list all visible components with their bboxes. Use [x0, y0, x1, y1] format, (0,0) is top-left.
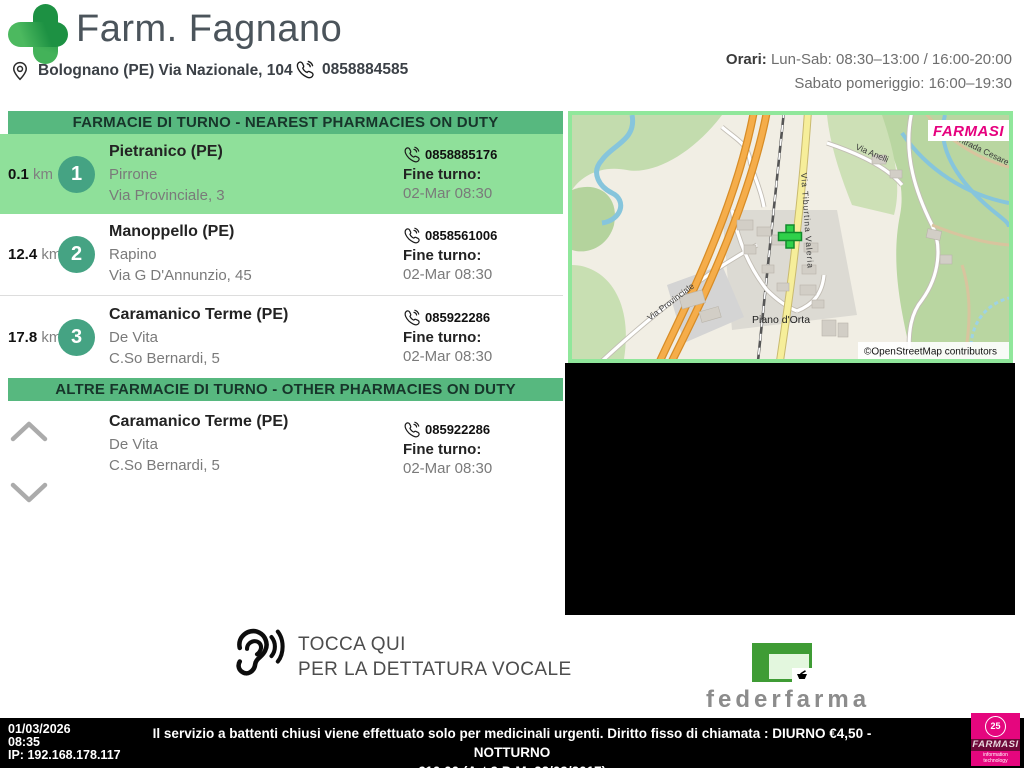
hours-line2: Sabato pomeriggio: 16:00–19:30	[726, 72, 1012, 96]
pharmacy-info: Pietranico (PE) Pirrone Via Provinciale,…	[109, 143, 403, 206]
pharmacy-owner: Pirrone	[109, 164, 403, 185]
rank-badge: 3	[58, 319, 95, 356]
map[interactable]: Via Tiburtina Valeria Via Anelli Contrad…	[568, 111, 1013, 363]
pharmacy-city: Caramanico Terme (PE)	[109, 306, 403, 324]
location-pin-icon	[10, 60, 30, 82]
phone-icon	[403, 146, 420, 163]
phone-icon	[403, 309, 420, 326]
farmasi-tagline: information technology	[971, 752, 1020, 764]
fine-turno-date: 02-Mar 08:30	[403, 266, 563, 283]
pharmacy-city: Pietranico (PE)	[109, 143, 403, 161]
phone-icon	[295, 60, 314, 79]
fine-turno-date: 02-Mar 08:30	[403, 348, 563, 365]
fine-turno-label: Fine turno:	[403, 329, 563, 346]
pharmacy-street: Via G D'Annunzio, 45	[109, 265, 403, 286]
pharmacy-phone: 0858884585	[322, 61, 408, 79]
fine-turno-date: 02-Mar 08:30	[403, 185, 563, 202]
hours-line1: Lun-Sab: 08:30–13:00 / 16:00-20:00	[771, 51, 1012, 68]
federfarma-logo: federfarma	[706, 643, 858, 714]
duty-info: 085922286 Fine turno: 02-Mar 08:30	[403, 413, 563, 477]
footer-ip: IP: 192.168.178.117	[8, 749, 121, 762]
duty-info: 085922286 Fine turno: 02-Mar 08:30	[403, 309, 563, 365]
pharmacy-phone-row: 0858884585	[295, 60, 408, 79]
farmasi-logo: 25 FARMASI information technology	[971, 713, 1020, 766]
ear-icon	[228, 626, 286, 688]
pharmacy-city: Manoppello (PE)	[109, 223, 403, 241]
mortar-pestle-icon	[796, 670, 808, 681]
duty-phone: 0858885176	[425, 147, 497, 162]
map-attribution: ©OpenStreetMap contributors	[864, 347, 997, 358]
pharmacy-street: C.So Bernardi, 5	[109, 455, 403, 476]
pharmacy-owner: De Vita	[109, 327, 403, 348]
nearest-section-header: FARMACIE DI TURNO - NEAREST PHARMACIES O…	[8, 111, 563, 134]
other-pharmacy-row[interactable]: Caramanico Terme (PE) De Vita C.So Berna…	[0, 401, 563, 516]
pharmacy-info: Caramanico Terme (PE) De Vita C.So Berna…	[109, 413, 403, 476]
kiosk-screen: Farm. Fagnano Bolognano (PE) Via Naziona…	[0, 0, 1024, 768]
map-canvas: Via Tiburtina Valeria Via Anelli Contrad…	[572, 115, 1009, 359]
distance: 17.8 km	[0, 329, 58, 346]
pharmacy-street: Via Provinciale, 3	[109, 185, 403, 206]
pharmacy-street: C.So Bernardi, 5	[109, 348, 403, 369]
rank-badge: 2	[58, 236, 95, 273]
pharmacy-cross-logo	[8, 4, 68, 64]
farmasi-brand: FARMASI	[971, 739, 1020, 751]
federfarma-mark	[752, 643, 812, 682]
scroll-arrows	[0, 413, 58, 505]
pharmacy-owner: De Vita	[109, 434, 403, 455]
fine-turno-label: Fine turno:	[403, 166, 563, 183]
pharmacy-owner: Rapino	[109, 244, 403, 265]
voice-dictation-button[interactable]: TOCCA QUI PER LA DETTATURA VOCALE	[228, 626, 572, 688]
scroll-down-icon[interactable]	[9, 481, 49, 505]
duty-info: 0858885176 Fine turno: 02-Mar 08:30	[403, 146, 563, 202]
pharmacy-row-1[interactable]: 0.1 km 1 Pietranico (PE) Pirrone Via Pro…	[0, 134, 563, 214]
other-section-header: ALTRE FARMACIE DI TURNO - OTHER PHARMACI…	[8, 378, 563, 401]
pharmacy-city: Caramanico Terme (PE)	[109, 413, 403, 431]
pharmacy-list: FARMACIE DI TURNO - NEAREST PHARMACIES O…	[0, 111, 563, 516]
duty-phone: 0858561006	[425, 228, 497, 243]
pharmacy-name: Farm. Fagnano	[76, 8, 342, 51]
duty-info: 0858561006 Fine turno: 02-Mar 08:30	[403, 227, 563, 283]
system-info: 01/03/2026 08:35 IP: 192.168.178.117	[8, 723, 121, 762]
footer-bar: 01/03/2026 08:35 IP: 192.168.178.117 Il …	[0, 718, 1024, 768]
hours-label: Orari:	[726, 51, 767, 68]
pharmacy-address-row: Bolognano (PE) Via Nazionale, 104	[10, 60, 293, 82]
duty-phone: 085922286	[425, 422, 490, 437]
map-label-place: Piano d'Orta	[752, 314, 810, 326]
video-panel	[565, 363, 1015, 615]
opening-hours: Orari: Lun-Sab: 08:30–13:00 / 16:00-20:0…	[726, 48, 1012, 96]
distance: 0.1 km	[0, 166, 58, 183]
fine-turno-date: 02-Mar 08:30	[403, 460, 563, 477]
pharmacy-row-2[interactable]: 12.4 km 2 Manoppello (PE) Rapino Via G D…	[0, 214, 563, 296]
pharmacy-address: Bolognano (PE) Via Nazionale, 104	[38, 62, 293, 80]
fine-turno-label: Fine turno:	[403, 441, 563, 458]
duty-phone: 085922286	[425, 310, 490, 325]
fine-turno-label: Fine turno:	[403, 247, 563, 264]
service-notice: Il servizio a battenti chiusi viene effe…	[150, 724, 874, 768]
federfarma-label: federfarma	[706, 686, 858, 714]
phone-icon	[403, 227, 420, 244]
distance: 12.4 km	[0, 246, 58, 263]
scroll-up-icon[interactable]	[9, 419, 49, 443]
map-brand-logo: FARMASI	[933, 123, 1004, 140]
pharmacy-info: Manoppello (PE) Rapino Via G D'Annunzio,…	[109, 223, 403, 286]
farmasi-emblem: 25	[985, 716, 1006, 737]
phone-icon	[403, 421, 420, 438]
voice-dictation-label: TOCCA QUI PER LA DETTATURA VOCALE	[298, 632, 572, 682]
rank-badge: 1	[58, 156, 95, 193]
pharmacy-info: Caramanico Terme (PE) De Vita C.So Berna…	[109, 306, 403, 369]
pharmacy-row-3[interactable]: 17.8 km 3 Caramanico Terme (PE) De Vita …	[0, 296, 563, 378]
